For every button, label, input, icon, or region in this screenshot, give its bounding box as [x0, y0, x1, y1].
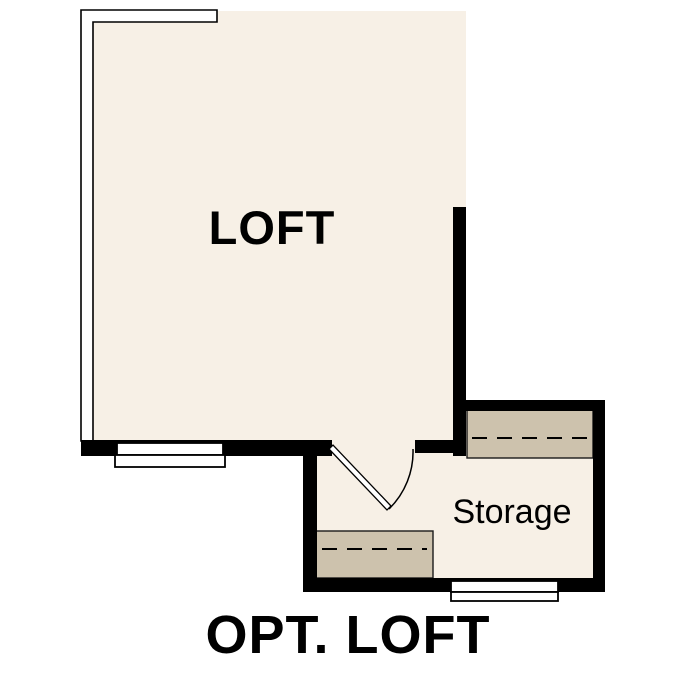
loft-window-pane: [117, 443, 223, 455]
floorplan-drawing: LOFT Storage OPT. LOFT: [0, 0, 687, 687]
storage-window-sill: [451, 592, 558, 601]
storage-left-wall: [303, 440, 317, 592]
storage-lower-shelf: [316, 531, 433, 578]
loft-window: [115, 443, 225, 467]
loft-window-sill: [115, 455, 225, 467]
storage-upper-shelf: [467, 410, 593, 458]
storage-room-label: Storage: [452, 493, 571, 531]
floorplan-canvas: LOFT Storage OPT. LOFT: [0, 0, 687, 687]
loft-right-wall: [453, 207, 466, 456]
plan-caption: OPT. LOFT: [206, 605, 491, 665]
storage-right-wall: [593, 400, 605, 592]
loft-room-label: LOFT: [209, 201, 336, 254]
storage-window: [451, 581, 558, 601]
storage-top-wall: [453, 400, 605, 411]
storage-window-pane: [451, 581, 558, 592]
